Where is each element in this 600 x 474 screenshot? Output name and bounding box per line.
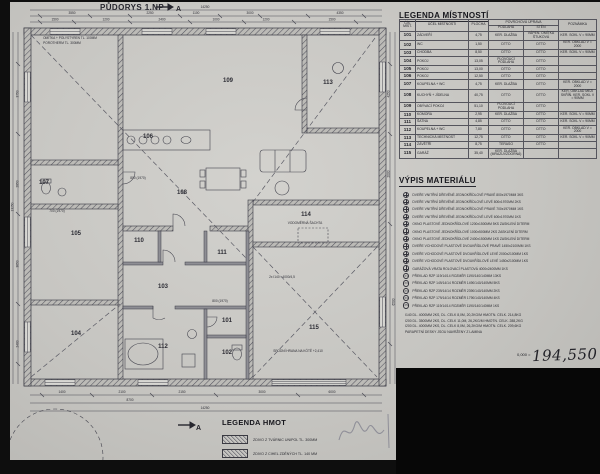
- plan-annotation: 800 (1970): [212, 299, 227, 303]
- materials-title: VÝPIS MATERIÁLU: [399, 176, 476, 187]
- legend-table-row: 110KOMORA2,95KER. DLAŽBADTTOKER. SOKL V …: [400, 111, 597, 118]
- legend-cell: 109: [400, 102, 416, 111]
- room-number-label: 107: [39, 180, 50, 186]
- legend-cell: DTTO: [524, 66, 559, 73]
- scan-edge-top: [0, 0, 600, 2]
- svg-text:A: A: [176, 6, 181, 13]
- legend-table-row: 106POKOJ12,50DTTODTTO: [400, 73, 597, 80]
- legend-cell: 1,50: [469, 40, 489, 49]
- room-number-label: 102: [222, 350, 233, 356]
- dimension-label: 1500: [51, 18, 58, 22]
- legend-cell: OBÝVACÍ POKOJ: [416, 102, 469, 111]
- materials-item: P5PŘEKLAD RZP 119/14/14 ROZMĚR 1190/140/…: [403, 302, 599, 309]
- room-number-label: 108: [177, 190, 188, 196]
- pencil-signature: [336, 412, 394, 452]
- legend-cell: [559, 57, 597, 66]
- window-door-icon: [403, 243, 409, 249]
- materials-item-text: DVEŘE VCHODOVÉ PLASTOVÉ DVOUKŘÍDLOVÉ PRA…: [412, 244, 530, 248]
- materials-section: VÝPIS MATERIÁLU DVEŘE VNITŘNÍ DŘEVĚNÉ JE…: [399, 170, 599, 335]
- legend-cell: KER. SOKL V = 90MM: [559, 135, 597, 142]
- materials-item-text: OKNO PLASTOVÉ JEDNOKŘÍDLOVÉ 2400x1500MM …: [412, 237, 529, 241]
- window-door-icon: [403, 221, 409, 227]
- dimension-label: 3000: [246, 11, 253, 15]
- legend-table-row: 103CHODBA8,50DTTODTTOKER. SOKL V = 90MM: [400, 50, 597, 57]
- legend-cell: DTTO: [524, 125, 559, 134]
- legend-cell: 13,05: [469, 57, 489, 66]
- legend-cell: ŠATNA: [416, 118, 469, 125]
- materials-item: OKNO PLASTOVÉ JEDNOKŘÍDLOVÉ 1000x500MM 2…: [403, 228, 599, 235]
- legend-cell: 114: [400, 142, 416, 149]
- legend-cell: KER. SOKL V = 90MM: [559, 50, 597, 57]
- legend-cell: DTTO: [489, 50, 524, 57]
- legend-table-row: 107KOUPELNA + WC4,75KER. DLAŽBADTTOKER. …: [400, 80, 597, 89]
- legend-cell: 8,50: [469, 50, 489, 57]
- legend-cell: DTTO: [524, 142, 559, 149]
- dimension-label: 1100: [193, 11, 200, 15]
- hmot-label: ZDIVO Z CIHEL ZDĚNÝCH TL. 140 MM: [253, 452, 317, 456]
- legend-cell: 104: [400, 57, 416, 66]
- dimension-label: 2850: [16, 180, 20, 187]
- materials-item: OKNO PLASTOVÉ JEDNOKŘÍDLOVÉ 2400x1500MM …: [403, 235, 599, 242]
- room-number-label: 115: [309, 325, 319, 331]
- legend-cell: DTTO: [489, 135, 524, 142]
- legend-cell: WC: [416, 40, 469, 49]
- legend-cell: 8,75: [469, 142, 489, 149]
- legend-cell: DTTO: [489, 89, 524, 102]
- legend-cell: KER. DLAŽBA (MRAZUVZDORNÁ): [489, 149, 524, 158]
- legend-table-row: 105POKOJ13,00DTTODTTO: [400, 66, 597, 73]
- legend-table-row: 109OBÝVACÍ POKOJ51,10PLOVOUCÍ PODLAHADTT…: [400, 102, 597, 111]
- legend-cell: DTTO: [489, 40, 524, 49]
- materials-list: DVEŘE VNITŘNÍ DŘEVĚNÉ JEDNOKŘÍDLOVÉ PRAV…: [403, 191, 599, 309]
- materials-item-text: OKNO PLASTOVÉ JEDNOKŘÍDLOVÉ 1200x1500MM …: [412, 222, 529, 226]
- legend-cell: 112: [400, 125, 416, 134]
- materials-item: P2PŘEKLAD RZP 149/14/14 ROZMĚR 1490/140/…: [403, 280, 599, 287]
- dimension-label: 2400: [158, 18, 165, 22]
- window-door-icon: [403, 228, 409, 234]
- legend-cell: VÁPEN. OMÍTKA ŠTUKOVÁ: [524, 31, 559, 40]
- elevation-note: 0,000 =194,550: [490, 346, 598, 365]
- lintel-icon: P2: [403, 280, 409, 286]
- legend-cell: KER. OBKLAD V = 2000: [559, 125, 597, 134]
- col-header-area: PLOCHA: [469, 20, 489, 32]
- materials-item-text: DVEŘE VCHODOVÉ PLASTOVÉ DVOUKŘÍDLOVÉ LEV…: [412, 259, 528, 263]
- materials-item: OKNO PLASTOVÉ JEDNOKŘÍDLOVÉ 1200x1500MM …: [403, 221, 599, 228]
- materials-notes: I140 DL. 4000MM 2KS, DL. CELK 8,0M, 20,2…: [405, 313, 599, 335]
- legend-cell: KER. DLAŽBA: [489, 31, 524, 40]
- legend-cell: 105: [400, 66, 416, 73]
- dimension-label: 1200: [262, 18, 269, 22]
- door-swings: [123, 98, 307, 327]
- scanned-floor-plan-sheet: { "plan": { "title": "PŮDORYS 1.NP", "se…: [0, 0, 600, 474]
- legend-cell: TERASO: [489, 142, 524, 149]
- dimension-label: 2150: [178, 390, 185, 394]
- legend-cell: KER. OBKLAD MEZI SKŘÍŇ. KER. SOKL V = 90…: [559, 89, 597, 102]
- lintel-icon: P3: [403, 288, 409, 294]
- legend-cell: KER. SOKL V = 90MM: [559, 111, 597, 118]
- legend-cell: KER. OBKLAD V = 2000: [559, 40, 597, 49]
- svg-text:A: A: [196, 425, 201, 432]
- room-number-label: 103: [158, 284, 169, 290]
- legend-cell: DTTO: [524, 102, 559, 111]
- legend-cell: KOUPELNA + WC: [416, 80, 469, 89]
- materials-item: DVEŘE VNITŘNÍ DŘEVĚNÉ JEDNOKŘÍDLOVÉ LEVÉ…: [403, 198, 599, 205]
- legend-cell: CHODBA: [416, 50, 469, 57]
- legend-materials-title: LEGENDA HMOT: [222, 418, 286, 428]
- lintel-icon: P5: [403, 302, 409, 308]
- legend-cell: 101: [400, 31, 416, 40]
- window-door-icon: [403, 258, 409, 264]
- window-door-icon: [403, 192, 409, 198]
- legend-cell: TECHNICKÁ MÍSTNOST: [416, 135, 469, 142]
- window-door-icon: [403, 199, 409, 205]
- legend-table-row: 108KUCHYŇ + JÍDELNA40,75DTTODTTOKER. OBK…: [400, 89, 597, 102]
- dimension-label: 2250: [146, 11, 153, 15]
- scan-edge-left: [0, 0, 10, 474]
- elevation-prefix: 0,000 =: [517, 352, 530, 357]
- dimension-label: 6000: [328, 390, 335, 394]
- legend-table-row: 111ŠATNA4,85DTTODTTOKER. SOKL V = 90MM: [400, 118, 597, 125]
- legend-cell: 102: [400, 40, 416, 49]
- plan-annotation: VODOMĚRNÁ ŠACHTA: [288, 220, 323, 225]
- materials-note-line: PARAPETNÍ DESKY JSOU NAVRŽENY Z LAMINA: [405, 330, 599, 335]
- dimension-label: 13250: [11, 202, 15, 211]
- dimension-label: 14250: [201, 5, 210, 9]
- legend-cell: KER. OBKLAD V = 2000: [559, 80, 597, 89]
- materials-item: DVEŘE VCHODOVÉ PLASTOVÉ DVOUKŘÍDLOVÉ LEV…: [403, 258, 599, 265]
- materials-item: DVEŘE VCHODOVÉ PLASTOVÉ DVOUKŘÍDLOVÉ LEV…: [403, 250, 599, 257]
- dimension-label: 1000: [212, 18, 219, 22]
- materials-item: DVEŘE VCHODOVÉ PLASTOVÉ DVOUKŘÍDLOVÉ PRA…: [403, 243, 599, 250]
- legend-cell: 7,80: [469, 125, 489, 134]
- plan-annotation: OMÍTKA + POLYSTYREN TL. 100MM: [43, 36, 97, 40]
- legend-cell: DTTO: [524, 89, 559, 102]
- room-number-label: 106: [143, 134, 154, 140]
- room-number-label: 101: [222, 318, 233, 324]
- legend-table-row: 101ZÁDVEŘÍ4,75KER. DLAŽBAVÁPEN. OMÍTKA Š…: [400, 31, 597, 40]
- legend-cell: 106: [400, 73, 416, 80]
- window-door-icon: [403, 265, 409, 271]
- legend-cell: DTTO: [524, 50, 559, 57]
- plan-annotation: POROTHERM TL. 300MM: [43, 41, 81, 45]
- legend-table-row: 114ZÁVĚTŘÍ8,75TERASODTTO: [400, 142, 597, 149]
- plan-annotation: 2x I140 - 4000/4,5: [269, 275, 295, 279]
- plan-annotation: SPODNÍ HRANA NA KÓTĚ +2,410: [273, 348, 323, 353]
- lintel-icon: P1: [403, 273, 409, 279]
- materials-item: P3PŘEKLAD RZP 239/14/14 ROZMĚR 2390/140/…: [403, 287, 599, 294]
- hatch-swatch: [222, 449, 248, 458]
- dimension-label: 8700: [126, 398, 133, 402]
- col-header-number: ČÍS. MÍST.: [400, 20, 416, 32]
- legend-cell: 4,75: [469, 31, 489, 40]
- dimension-label: 2100: [118, 390, 125, 394]
- lintel-icon: P4: [403, 295, 409, 301]
- legend-cell: KUCHYŇ + JÍDELNA: [416, 89, 469, 102]
- room-number-label: 114: [301, 212, 311, 218]
- dimension-label: 1200: [102, 18, 109, 22]
- materials-item-text: DVEŘE VNITŘNÍ DŘEVĚNÉ JEDNOKŘÍDLOVÉ PRAV…: [412, 207, 523, 211]
- legend-cell: [559, 66, 597, 73]
- legend-cell: KER. DLAŽBA: [489, 111, 524, 118]
- legend-cell: DTTO: [489, 125, 524, 134]
- dimension-label: 2400: [16, 340, 20, 347]
- legend-cell: 4,75: [469, 80, 489, 89]
- materials-item: P1PŘEKLAD RZP 119/14/14 ROZMĚR 1190/140/…: [403, 272, 599, 279]
- legend-cell: 108: [400, 89, 416, 102]
- legend-cell: [559, 149, 597, 158]
- legend-cell: PLOVOUCÍ PODLAHA: [489, 57, 524, 66]
- room-number-label: 113: [323, 80, 333, 86]
- materials-item-text: PŘEKLAD RZP 119/14/14 ROZMĚR 1190/140/14…: [412, 274, 501, 278]
- window-door-icon: [403, 236, 409, 242]
- legend-cell: 12,50: [469, 73, 489, 80]
- materials-item-text: DVEŘE VCHODOVÉ PLASTOVÉ DVOUKŘÍDLOVÉ LEV…: [412, 252, 528, 256]
- materials-item-text: PŘEKLAD RZP 239/14/14 ROZMĚR 2390/140/14…: [412, 289, 499, 293]
- legend-table-row: 113TECHNICKÁ MÍSTNOST12,75DTTODTTOKER. S…: [400, 135, 597, 142]
- legend-cell: [524, 149, 559, 158]
- legend-cell: 103: [400, 50, 416, 57]
- legend-cell: 2,95: [469, 111, 489, 118]
- legend-cell: 35,40: [469, 149, 489, 158]
- legend-cell: DTTO: [524, 73, 559, 80]
- materials-item-text: DVEŘE VNITŘNÍ DŘEVĚNÉ JEDNOKŘÍDLOVÉ PRAV…: [412, 193, 523, 197]
- legend-cell: 40,75: [469, 89, 489, 102]
- legend-cell: DTTO: [524, 40, 559, 49]
- legend-cell: DTTO: [489, 118, 524, 125]
- legend-cell: 115: [400, 149, 416, 158]
- legend-cell: 107: [400, 80, 416, 89]
- elevation-value: 194,550: [532, 345, 598, 365]
- dimension-label: 1500: [328, 18, 335, 22]
- window-door-icon: [403, 214, 409, 220]
- dimension-label: 4350: [336, 11, 343, 15]
- materials-item-text: DVEŘE VNITŘNÍ DŘEVĚNÉ JEDNOKŘÍDLOVÉ LEVÉ…: [412, 200, 520, 204]
- legend-cell: KOUPELNA + WC: [416, 125, 469, 134]
- plan-annotation: 800 (1970): [130, 176, 145, 180]
- legend-cell: DTTO: [524, 80, 559, 89]
- legend-cell: KER. SOKL V = 90MM: [559, 118, 597, 125]
- room-number-label: 105: [71, 231, 82, 237]
- materials-item-text: OKNO PLASTOVÉ JEDNOKŘÍDLOVÉ 1000x500MM 2…: [412, 230, 527, 234]
- legend-cell: POKOJ: [416, 66, 469, 73]
- room-number-label: 110: [134, 238, 144, 244]
- dimension-label: 14250: [201, 406, 210, 410]
- materials-item: GARÁŽOVÁ VRATA ROLOVACÍ PLASTOVÁ 4000x24…: [403, 265, 599, 272]
- materials-item-text: PŘEKLAD RZP 179/14/14 ROZMĚR 1790/140/14…: [412, 296, 499, 300]
- room-number-label: 109: [223, 78, 234, 84]
- legend-cell: 4,85: [469, 118, 489, 125]
- legend-table-row: 112KOUPELNA + WC7,80DTTODTTOKER. OBKLAD …: [400, 125, 597, 134]
- legend-table-row: 102WC1,50DTTODTTOKER. OBKLAD V = 2000: [400, 40, 597, 49]
- legend-cell: 51,10: [469, 102, 489, 111]
- floor-plan-drawing: A A: [10, 2, 396, 460]
- window-door-icon: [403, 206, 409, 212]
- legend-cell: POKOJ: [416, 57, 469, 66]
- legend-rooms-table: ČÍS. MÍST. ÚČEL MÍSTNOSTI PLOCHA POVRCHO…: [399, 19, 597, 159]
- dimension-label: 1400: [58, 390, 65, 394]
- materials-item: P4PŘEKLAD RZP 179/14/14 ROZMĚR 1790/140/…: [403, 294, 599, 301]
- plan-annotation: 700 (1970): [49, 209, 64, 213]
- legend-cell: KER. SOKL V = 90MM: [559, 31, 597, 40]
- dimension-label: 2000: [387, 170, 391, 177]
- legend-cell: DTTO: [524, 57, 559, 66]
- dimension-label: 6500: [392, 298, 396, 305]
- legend-cell: [559, 102, 597, 111]
- materials-item-text: PŘEKLAD RZP 119/14/14 ROZMĚR 1190/140/14…: [412, 304, 499, 308]
- dimension-label: 3650: [16, 260, 20, 267]
- dimension-label: 3750: [16, 90, 20, 97]
- legend-table-row: 115GARÁŽ35,40KER. DLAŽBA (MRAZUVZDORNÁ): [400, 149, 597, 158]
- redacted-title-block: [396, 368, 600, 474]
- legend-cell: ZÁVĚTŘÍ: [416, 142, 469, 149]
- legend-cell: DTTO: [489, 73, 524, 80]
- dimension-label: 3000: [258, 390, 265, 394]
- materials-item: DVEŘE VNITŘNÍ DŘEVĚNÉ JEDNOKŘÍDLOVÉ LEVÉ…: [403, 213, 599, 220]
- room-number-label: 111: [217, 250, 227, 256]
- legend-cell: 13,00: [469, 66, 489, 73]
- legend-cell: [559, 142, 597, 149]
- dimension-label: 3550: [68, 11, 75, 15]
- legend-cell: DTTO: [489, 66, 524, 73]
- legend-cell: KER. DLAŽBA: [489, 80, 524, 89]
- legend-cell: 113: [400, 135, 416, 142]
- legend-cell: 110: [400, 111, 416, 118]
- legend-cell: [559, 73, 597, 80]
- materials-item: DVEŘE VNITŘNÍ DŘEVĚNÉ JEDNOKŘÍDLOVÉ PRAV…: [403, 191, 599, 198]
- window-door-icon: [403, 251, 409, 257]
- legend-cell: PLOVOUCÍ PODLAHA: [489, 102, 524, 111]
- legend-table-row: 104POKOJ13,05PLOVOUCÍ PODLAHADTTO: [400, 57, 597, 66]
- hatch-swatch: [222, 435, 248, 444]
- legend-cell: 111: [400, 118, 416, 125]
- materials-item: DVEŘE VNITŘNÍ DŘEVĚNÉ JEDNOKŘÍDLOVÉ PRAV…: [403, 206, 599, 213]
- legend-cell: DTTO: [524, 118, 559, 125]
- room-number-label: 104: [71, 331, 82, 337]
- partition-walls: [123, 231, 249, 379]
- legend-cell: 12,75: [469, 135, 489, 142]
- room-number-label: 112: [158, 344, 168, 350]
- materials-item-text: DVEŘE VNITŘNÍ DŘEVĚNÉ JEDNOKŘÍDLOVÉ LEVÉ…: [412, 215, 520, 219]
- hmot-label: ZDIVO Z TVÁRNIC UNIPOL TL. 300MM: [253, 438, 317, 442]
- legend-cell: ZÁDVEŘÍ: [416, 31, 469, 40]
- furniture-fixtures: [10, 63, 344, 461]
- col-header-note: POZNÁMKA: [559, 20, 597, 32]
- legend-cell: DTTO: [524, 135, 559, 142]
- materials-item-text: PŘEKLAD RZP 149/14/14 ROZMĚR 1490/140/14…: [412, 281, 499, 285]
- legend-cell: DTTO: [524, 111, 559, 118]
- legend-cell: KOMORA: [416, 111, 469, 118]
- legend-cell: POKOJ: [416, 73, 469, 80]
- legend-rows: 101ZÁDVEŘÍ4,75KER. DLAŽBAVÁPEN. OMÍTKA Š…: [400, 31, 597, 158]
- col-header-name: ÚČEL MÍSTNOSTI: [416, 20, 469, 32]
- dimension-label: 4250: [387, 90, 391, 97]
- materials-item-text: GARÁŽOVÁ VRATA ROLOVACÍ PLASTOVÁ 4000x24…: [412, 267, 507, 271]
- legend-cell: GARÁŽ: [416, 149, 469, 158]
